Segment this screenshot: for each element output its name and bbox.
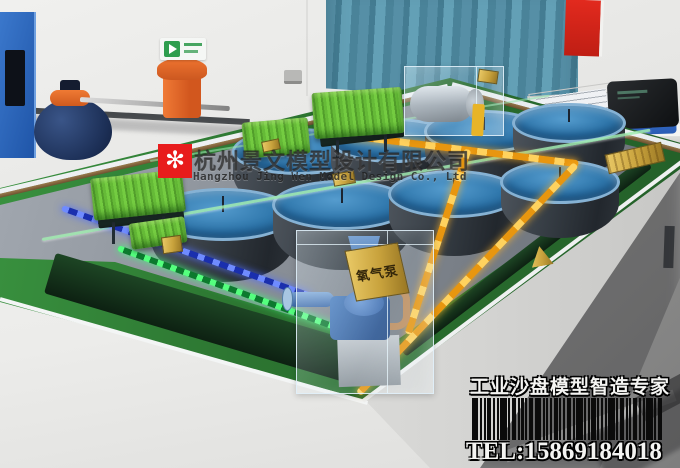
barcode-bar [493,398,495,440]
wall-safety-sign [160,38,206,60]
equipment-cabinet [0,12,36,158]
oxygen-pump-sign-label: 氧气泵 [354,259,400,284]
barcode-bar [646,398,652,440]
jingwen-flower-icon: ✻ [165,144,185,178]
barcode-bar [601,398,603,440]
photo-of-industrial-model: 氧气泵 ✻ 杭州景文模型设计有限公司 Hangzhou Jing Wen Mod… [0,0,680,468]
enclosure-edge [297,244,433,245]
barcode-bar [559,398,561,440]
wall-corner-line [306,0,308,96]
barcode-bar [535,398,541,440]
caption-phone: TEL:15869184018 [466,438,662,466]
barcode-bar [620,398,624,440]
support-bracket [471,104,485,137]
barcode-bar [633,398,637,440]
caption-slogan: 工业沙盘模型智造专家 [470,372,670,399]
pipe-flange [282,287,293,311]
barcode-bar [484,398,486,440]
oxygen-pump-sign: 氧气泵 [344,242,409,301]
barcode-bar [616,398,618,440]
wall-hook [284,70,302,84]
barcode-bar [508,398,510,440]
barcode-bar [487,398,491,440]
barcode-bar [512,398,516,440]
tank-center-pole [568,109,570,121]
barcode-bar [563,398,565,440]
barcode-bar [500,398,506,440]
barcode-bar [546,398,548,440]
grass-bed [312,87,405,139]
barcode-bar [608,398,614,440]
barcode-bar [626,398,628,440]
barcode-bar [472,398,478,440]
barcode-bar [480,398,482,440]
barcode-bar [597,398,599,440]
sign-text-line [184,50,198,53]
sign-green-box [164,41,180,57]
case-label [618,96,640,99]
barcode [472,398,670,440]
barcode-bar [654,398,656,440]
barcode-bar [584,398,586,440]
sign-arrow-icon [169,44,177,54]
barcode-bar [554,398,558,440]
carboy-jug [34,98,112,160]
barcode-bar [639,398,641,440]
case-label [617,90,647,95]
barcode-bar [629,398,631,440]
barcode-bar [605,398,607,440]
sign-text-line [184,43,202,46]
cabinet-panel [5,50,25,106]
barcode-bar [529,398,533,440]
barcode-bar [550,398,552,440]
red-banner [564,0,604,57]
barcode-bar [591,398,595,440]
hydrant-cap [157,58,207,80]
gold-tag [477,69,499,85]
barcode-bar [521,398,523,440]
brand-logo: ✻ [158,144,192,178]
barcode-bar [643,398,645,440]
barcode-bar [588,398,590,440]
orange-hydrant [163,74,201,118]
barcode-bar [543,398,545,440]
barcode-bar [518,398,520,440]
gold-plaque [161,235,183,255]
company-name-en: Hangzhou Jing Wen Model Design Co., Ltd [193,170,467,183]
barcode-bar [576,398,582,440]
tank-center-pole [341,188,343,203]
barcode-bar [525,398,527,440]
barcode-bar [573,398,575,440]
barcode-bar [567,398,571,440]
grass-post [112,222,115,244]
barcode-bar [658,398,662,440]
barcode-bar [497,398,499,440]
